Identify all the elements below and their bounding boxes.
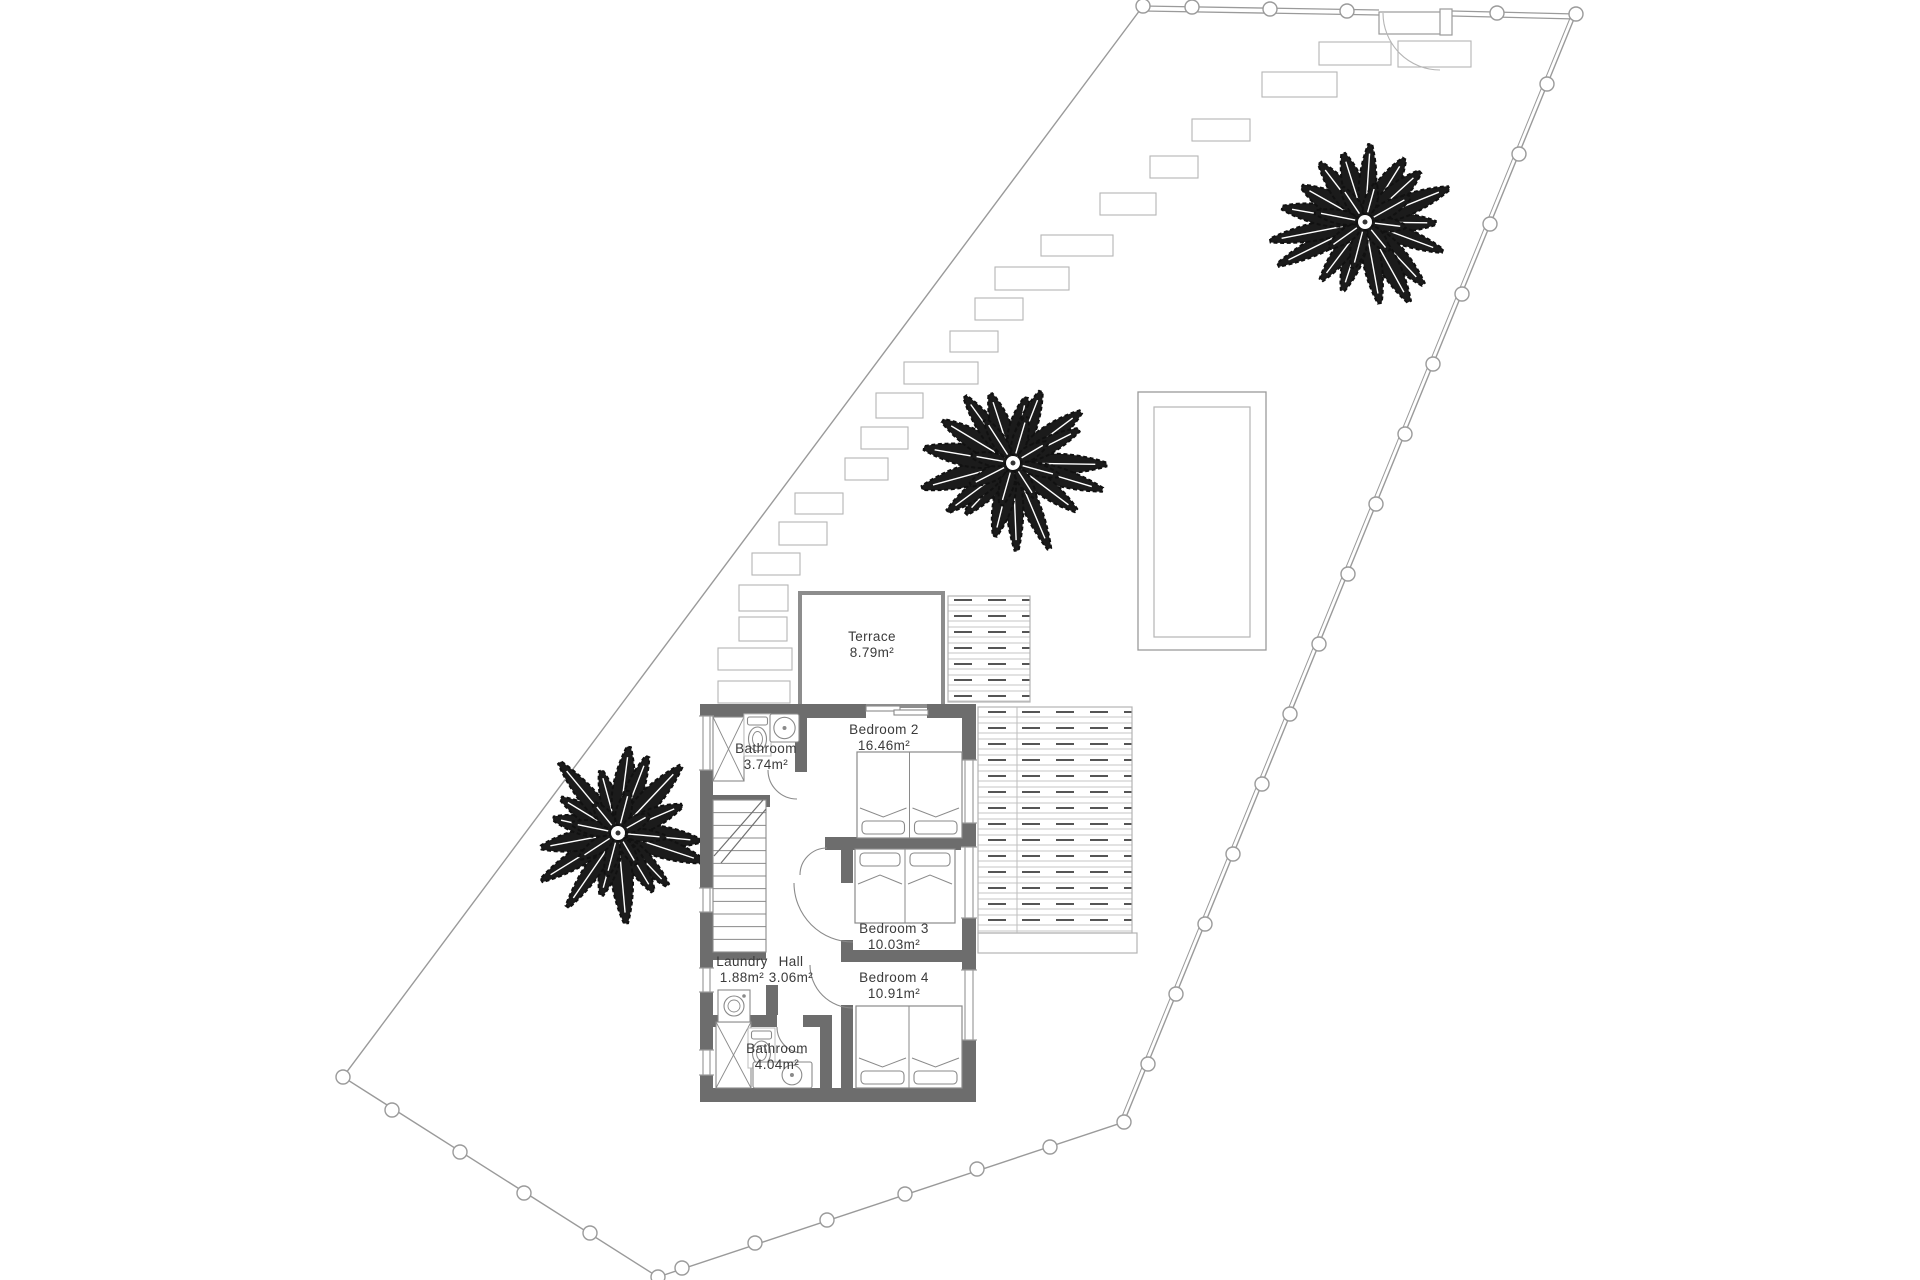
fence-post [1283,707,1297,721]
fence-post [1569,7,1583,21]
fence-post [385,1103,399,1117]
stepping-stone [752,553,800,575]
fence-post [1483,217,1497,231]
stepping-stone [845,458,888,480]
stepping-stone [779,522,827,545]
window [699,888,714,912]
stepping-stone [904,362,978,384]
bedroom4-door [810,965,853,1008]
room-area: 10.91m² [868,986,920,1001]
stepping-stone [718,681,790,703]
fence-post [1455,287,1469,301]
room-area: 3.06m² [769,970,814,985]
window [961,847,977,918]
fence-post [651,1270,665,1280]
room-name: Laundry [716,954,768,969]
deck-platform [948,596,1030,702]
fence-post [1185,0,1199,14]
wall-segment [962,713,976,760]
stepping-stone [739,617,787,641]
double-bed-icon [856,1006,962,1088]
fence-post [898,1187,912,1201]
fence-post [1340,4,1354,18]
fence-post [1263,2,1277,16]
fence-post [1198,917,1212,931]
fence-post [1490,6,1504,20]
site-plan-drawing: Terrace8.79m²Bedroom 216.46m²Bathroom3.7… [0,0,1920,1280]
wall-segment [820,1027,832,1088]
stepping-stone [1319,42,1391,65]
stepping-stone [718,648,792,670]
fence-post [336,1070,350,1084]
double-bed-icon [855,849,955,923]
fence-post [1398,427,1412,441]
palm-tree-icon [1269,144,1453,307]
fence-post [1136,0,1150,13]
wall-segment [700,770,713,888]
wall-segment [962,918,976,970]
stepping-stone [1192,119,1250,141]
wall-segment [962,1040,976,1090]
fence-post [517,1186,531,1200]
window [699,716,714,770]
room-name: Bathroom [746,1041,808,1056]
room-area: 8.79m² [850,645,895,660]
wall-segment [803,1015,832,1027]
room-name: Bedroom 4 [859,970,929,985]
deck-platform [978,933,1137,953]
window [699,1050,714,1075]
room-name: Bedroom 3 [859,921,929,936]
bathroom-top-door [768,770,797,799]
pool-outer [1138,392,1266,650]
room-name: Bathroom [735,741,797,756]
stepping-stone [995,267,1069,290]
window [961,760,977,823]
swimming-pool [1138,392,1266,650]
sliding-door [894,710,928,715]
staircase [713,800,766,952]
deck-platform [978,707,1132,933]
fence-post [1226,847,1240,861]
stepping-stone [1150,156,1198,178]
wall-segment [700,992,713,1050]
fence-post [1169,987,1183,1001]
stepping-stone [975,298,1023,320]
bedroom3-door [794,883,853,942]
fence-post [675,1261,689,1275]
fence-post [1043,1140,1057,1154]
room-name: Bedroom 2 [849,722,919,737]
room-area: 10.03m² [868,937,920,952]
fence-post [1426,357,1440,371]
wall-segment [841,850,853,883]
room-area: 1.88m² [720,970,765,985]
wall-segment [700,1088,976,1102]
stepping-stone [876,393,923,418]
fence-post [453,1145,467,1159]
room-area: 4.04m² [755,1057,800,1072]
fence-post [1341,567,1355,581]
fence-post [820,1213,834,1227]
fence-post [1312,637,1326,651]
sink-icon [770,714,799,742]
wall-segment [841,940,853,962]
fence-post [1512,147,1526,161]
palm-tree-icon [919,388,1106,552]
stepping-stone [1398,41,1471,67]
fence-post [1141,1057,1155,1071]
double-bed-icon [857,752,962,838]
wall-segment [962,823,976,847]
fence-post [1540,77,1554,91]
washing-machine-icon [718,990,750,1022]
fence-post [1117,1115,1131,1129]
stepping-stone [1262,72,1337,97]
fence-post [748,1236,762,1250]
fence-post [1369,497,1383,511]
room-area: 3.74m² [744,757,789,772]
window [961,970,977,1040]
stepping-stone [739,585,788,611]
palm-tree-icon [537,746,708,925]
stepping-stone [861,427,908,449]
wall-segment [825,837,962,850]
fence-line [1452,11,1576,14]
stepping-stone [795,493,843,514]
floorplan-page: Terrace8.79m²Bedroom 216.46m²Bathroom3.7… [0,0,1920,1280]
bedroom2-door [800,848,827,875]
room-area: 16.46m² [858,738,910,753]
doors [768,770,853,1053]
stepping-stone [1100,193,1156,215]
wall-segment [841,1005,853,1088]
fence-line [1452,16,1576,19]
room-name: Terrace [848,629,896,644]
wall-segment [700,912,713,968]
room-name: Hall [779,954,804,969]
fence-post [1255,777,1269,791]
stepping-stone [1041,235,1113,256]
fence-post [970,1162,984,1176]
stepping-stone [950,331,998,352]
window [699,968,714,992]
fence-post [583,1226,597,1240]
wall-segment [766,985,778,1015]
